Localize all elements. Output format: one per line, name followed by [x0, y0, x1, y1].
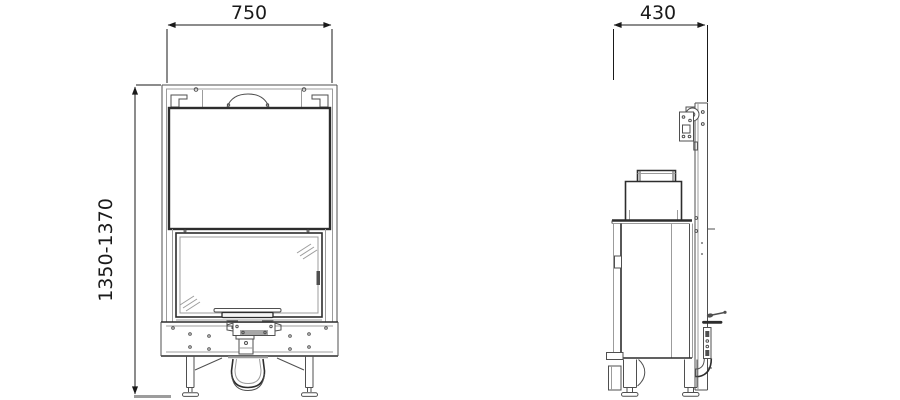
junction-box — [609, 366, 622, 390]
leg-brace — [195, 358, 222, 370]
leg-brace — [277, 358, 304, 370]
front-view: 750 1350-1370 — [95, 2, 338, 397]
air-inlet-dome — [228, 357, 268, 390]
lock-mechanism — [227, 323, 281, 355]
flue-arch — [227, 94, 269, 107]
door-handle — [214, 309, 281, 318]
adjustable-foot — [622, 393, 639, 397]
flue-collar — [626, 171, 682, 221]
front-tab — [615, 256, 622, 268]
glass-reflection — [180, 296, 200, 311]
rail-slot — [694, 142, 698, 150]
air-duct-curve — [638, 360, 645, 387]
pulley-mechanism — [680, 107, 700, 141]
back-leg — [683, 360, 700, 397]
mounting-frame — [162, 85, 337, 322]
side-depth-label: 430 — [640, 2, 676, 24]
adjustable-foot — [683, 393, 700, 397]
front-width-dimension: 750 — [167, 2, 332, 83]
side-depth-dimension: 430 — [614, 2, 708, 102]
right-leg — [277, 356, 318, 396]
body-panel — [169, 108, 330, 229]
front-height-dimension: 1350-1370 — [95, 85, 171, 397]
door-latch — [317, 271, 321, 285]
front-width-label: 750 — [231, 2, 267, 24]
adjustable-foot — [302, 393, 318, 397]
hearth-lip — [607, 353, 624, 360]
control-lever — [704, 311, 727, 323]
glass-reflection — [297, 244, 317, 259]
firebox-body — [607, 221, 693, 360]
glass-door — [173, 229, 326, 322]
corner-bracket — [171, 95, 328, 107]
adjustable-foot — [183, 393, 199, 397]
front-leg — [622, 360, 639, 397]
side-view: 430 — [607, 2, 727, 396]
left-leg — [183, 356, 223, 396]
front-height-label: 1350-1370 — [95, 198, 117, 302]
technical-drawing-canvas: 750 1350-1370 — [0, 0, 900, 400]
legs-side — [622, 360, 700, 397]
